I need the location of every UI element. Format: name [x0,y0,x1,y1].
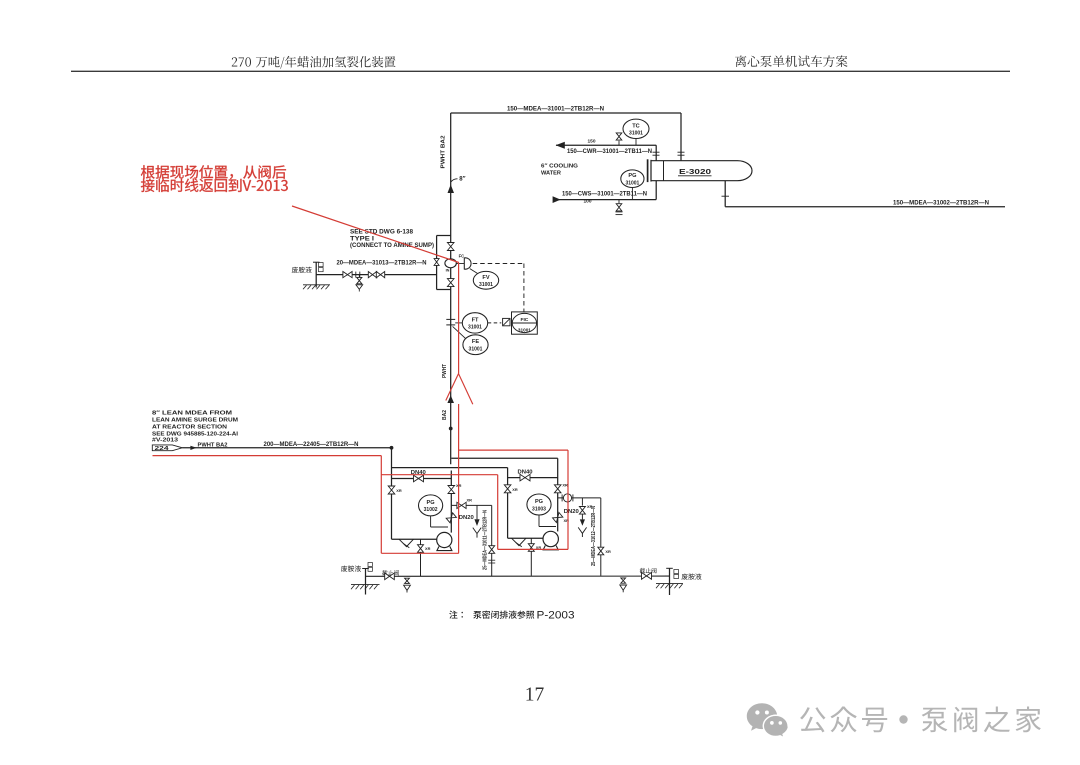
svg-text:6″ COOLING: 6″ COOLING [541,164,578,170]
svg-text:TC: TC [632,123,639,129]
svg-text:150—MDEA—31002—2TB12R—N: 150—MDEA—31002—2TB12R—N [893,200,990,207]
svg-text:(CONNECT TO AMINE SUMP): (CONNECT TO AMINE SUMP) [350,243,434,249]
svg-text:20—MDEA—31013—2TB12R—N: 20—MDEA—31013—2TB12R—N [337,260,427,267]
svg-text:FE: FE [472,339,479,345]
svg-text:31001: 31001 [468,325,482,331]
svg-text:31001: 31001 [469,347,483,353]
svg-text:31001: 31001 [518,328,531,333]
svg-text:#V-2013: #V-2013 [152,438,179,444]
svg-text:TYPE I: TYPE I [350,236,374,242]
svg-text:FV: FV [482,275,489,281]
svg-text:DN20: DN20 [564,509,579,515]
svg-text:FIC: FIC [520,317,528,323]
svg-text:LEAN AMINE SURGE DRUM: LEAN AMINE SURGE DRUM [152,417,238,423]
svg-text:WATER: WATER [541,171,561,177]
svg-text:31001: 31001 [625,181,639,187]
svg-text:FT: FT [472,317,479,323]
svg-text:AT REACTOR SECTION: AT REACTOR SECTION [152,424,227,430]
svg-text:DN20: DN20 [459,515,474,521]
svg-text:SEE DWG 945885-120-224-AI: SEE DWG 945885-120-224-AI [152,431,238,437]
svg-text:100: 100 [584,199,592,205]
svg-text:PG: PG [535,499,543,505]
svg-text:PWHT BA2: PWHT BA2 [441,136,447,169]
svg-text:FC: FC [459,254,465,259]
svg-text:150—CWS—31001—2TB11—N: 150—CWS—31001—2TB11—N [562,190,647,197]
svg-text:XR: XR [512,487,518,492]
svg-text:150—CWR—31001—2TB11—N: 150—CWR—31001—2TB11—N [567,148,652,155]
svg-text:25—MDEA—31012—2TB12R—N: 25—MDEA—31012—2TB12R—N [591,506,597,566]
svg-text:PG: PG [628,173,636,179]
svg-text:224: 224 [155,446,170,452]
svg-text:8″ LEAN MDEA FROM: 8″ LEAN MDEA FROM [152,410,232,416]
svg-text:31001: 31001 [629,131,643,137]
svg-text:150—MDEA—31001—2TB12R—N: 150—MDEA—31001—2TB12R—N [507,106,605,113]
svg-text:XR: XR [562,482,568,487]
svg-text:E-3020: E-3020 [679,167,711,176]
svg-text:PWHT: PWHT [442,363,448,378]
svg-text:200—MDEA—22405—2TB12R—N: 200—MDEA—22405—2TB12R—N [264,441,360,448]
svg-text:XR: XR [605,549,611,554]
svg-text:XR: XR [425,546,431,551]
svg-text:25—MDEA—31011—2TB12R—N: 25—MDEA—31011—2TB12R—N [482,510,488,570]
svg-text:DN40: DN40 [518,469,533,475]
svg-text:8″: 8″ [459,177,465,183]
svg-text:SEE STD DWG 6-138: SEE STD DWG 6-138 [350,229,414,235]
svg-text:31002: 31002 [424,507,438,513]
svg-text:BA2: BA2 [442,410,448,420]
svg-text:XR: XR [467,498,473,503]
svg-text:XR: XR [396,488,402,493]
svg-text:PG: PG [427,500,435,506]
svg-text:IN: IN [446,269,450,273]
svg-text:31003: 31003 [532,506,546,512]
svg-text:17: 17 [525,685,545,706]
svg-text:31001: 31001 [479,282,493,288]
svg-text:P-2003: P-2003 [537,609,575,621]
svg-text:150: 150 [588,138,596,144]
